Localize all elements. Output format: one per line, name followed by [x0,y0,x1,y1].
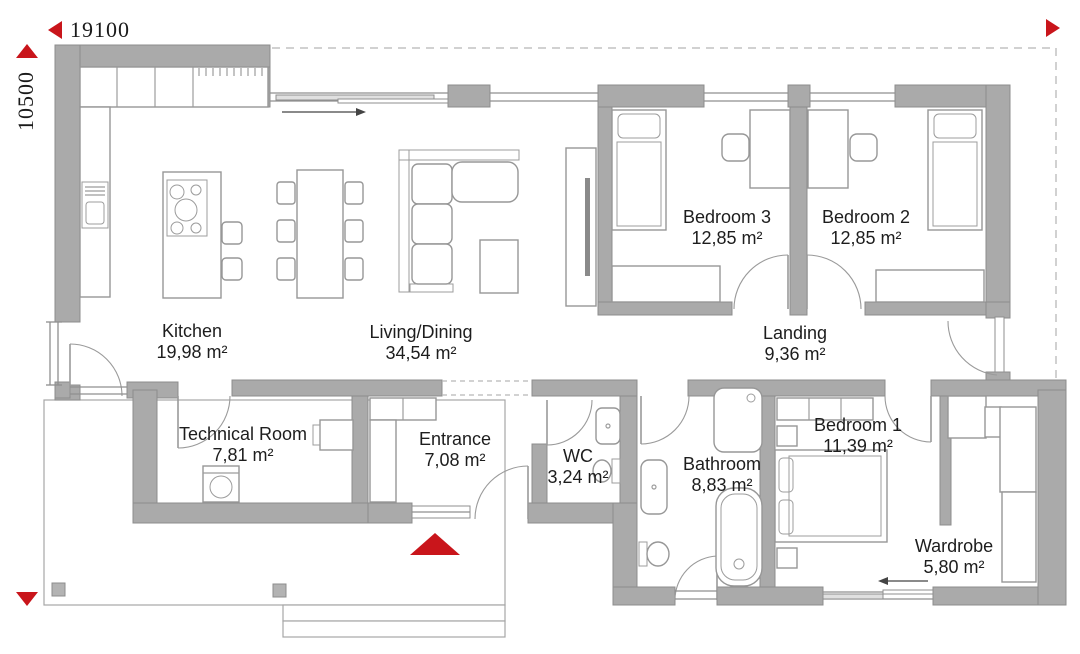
kitchen-counter-top [80,67,268,107]
shower [714,388,762,452]
door-bathroom [641,396,689,444]
step-2 [283,621,505,637]
room-name: Wardrobe [915,536,993,557]
sofa-back [399,150,519,160]
wardrobe-closet [985,407,1001,437]
room-area: 7,81 m² [179,445,307,466]
dining-table [297,170,343,298]
furniture-kitchen [80,67,268,298]
room-label-wardrobe: Wardrobe 5,80 m² [915,536,993,578]
room-label-bedroom1: Bedroom 1 11,39 m² [814,415,902,457]
bar-stool [222,258,242,280]
room-label-bedroom2: Bedroom 2 12,85 m² [822,207,910,249]
room-name: Bedroom 2 [822,207,910,228]
dimension-arrow-up-icon [16,44,38,58]
dresser [612,266,720,302]
furniture-bedroom2 [808,110,984,302]
terrace-post [273,584,286,597]
wardrobe-closet [1000,407,1036,492]
furniture-dining [277,170,363,298]
chair [277,220,295,242]
furniture-living [399,148,596,306]
floor-plan-page: 19100 10500 Kitchen 19,98 m² Living/Dini… [0,0,1080,654]
chair [277,182,295,204]
bar-stool [222,222,242,244]
sliding-door-bedroom1 [823,577,933,599]
sofa-cushion [412,244,452,284]
chair [345,182,363,204]
sofa-chaise [452,162,518,202]
terrace-post [52,583,65,596]
door-bedroom3 [734,255,788,309]
room-label-landing: Landing 9,36 m² [763,323,827,365]
dimension-height-label: 10500 [13,71,39,131]
door-bathroom-exterior [675,556,717,600]
window-bedroom3 [704,93,788,101]
room-name: Technical Room [179,424,307,445]
room-name: Bedroom 1 [814,415,902,436]
kitchen-island [163,172,221,298]
tv-unit [566,148,596,306]
wardrobe-closet [1002,492,1036,582]
room-area: 11,39 m² [814,436,902,457]
wardrobe-closet [948,396,986,438]
desk [750,110,790,188]
room-area: 8,83 m² [683,475,761,496]
single-bed [928,110,982,230]
room-name: Living/Dining [369,322,472,343]
room-label-bathroom: Bathroom 8,83 m² [683,454,761,496]
sofa-end [410,284,453,292]
dimension-arrow-right-icon [1046,19,1060,37]
room-name: Kitchen [156,321,227,342]
room-area: 12,85 m² [683,228,771,249]
sofa-back [399,150,409,292]
room-area: 3,24 m² [547,467,608,488]
room-area: 12,85 m² [822,228,910,249]
dimension-arrow-left-icon [48,21,62,39]
room-name: WC [547,446,608,467]
room-label-technical-room: Technical Room 7,81 m² [179,424,307,466]
room-name: Entrance [419,429,491,450]
room-label-entrance: Entrance 7,08 m² [419,429,491,471]
room-area: 34,54 m² [369,343,472,364]
wc-sink [596,408,620,444]
window-kitchen-left [46,322,62,385]
window-entrance-sidelight [412,506,470,518]
room-label-living-dining: Living/Dining 34,54 m² [369,322,472,364]
room-area: 7,08 m² [419,450,491,471]
sliding-door-top [270,93,448,116]
dresser [876,270,984,302]
room-label-kitchen: Kitchen 19,98 m² [156,321,227,363]
desk-chair [850,134,877,161]
chair [345,258,363,280]
room-name: Bathroom [683,454,761,475]
washing-machine [203,466,239,502]
door-landing-exterior [948,317,1004,375]
room-area: 5,80 m² [915,557,993,578]
chair [277,258,295,280]
coffee-table [480,240,518,293]
nightstand [777,426,797,446]
room-area: 19,98 m² [156,342,227,363]
door-bedroom2 [807,255,861,309]
tv-screen [585,178,590,276]
room-name: Bedroom 3 [683,207,771,228]
single-bed [612,110,666,230]
dimension-arrow-down-icon [16,592,38,606]
chair [345,220,363,242]
sofa-cushion [412,204,452,244]
dimension-width-label: 19100 [70,17,130,43]
open-passage-dashes [442,381,532,395]
room-label-wc: WC 3,24 m² [547,446,608,488]
sofa-cushion [412,164,452,204]
bathtub [716,488,762,586]
desk [808,110,848,188]
double-bed [775,450,887,542]
desk-chair [722,134,749,161]
bathroom-toilet [639,542,669,566]
door-wc [547,400,592,445]
furniture-bedroom3 [612,110,790,302]
bathroom-sink [641,460,667,514]
window-living [490,93,598,101]
room-label-bedroom3: Bedroom 3 12,85 m² [683,207,771,249]
nightstand [777,548,797,568]
room-name: Landing [763,323,827,344]
step-1 [283,605,505,621]
room-area: 9,36 m² [763,344,827,365]
hall-wardrobe [370,420,396,502]
window-bedroom2 [810,93,895,101]
